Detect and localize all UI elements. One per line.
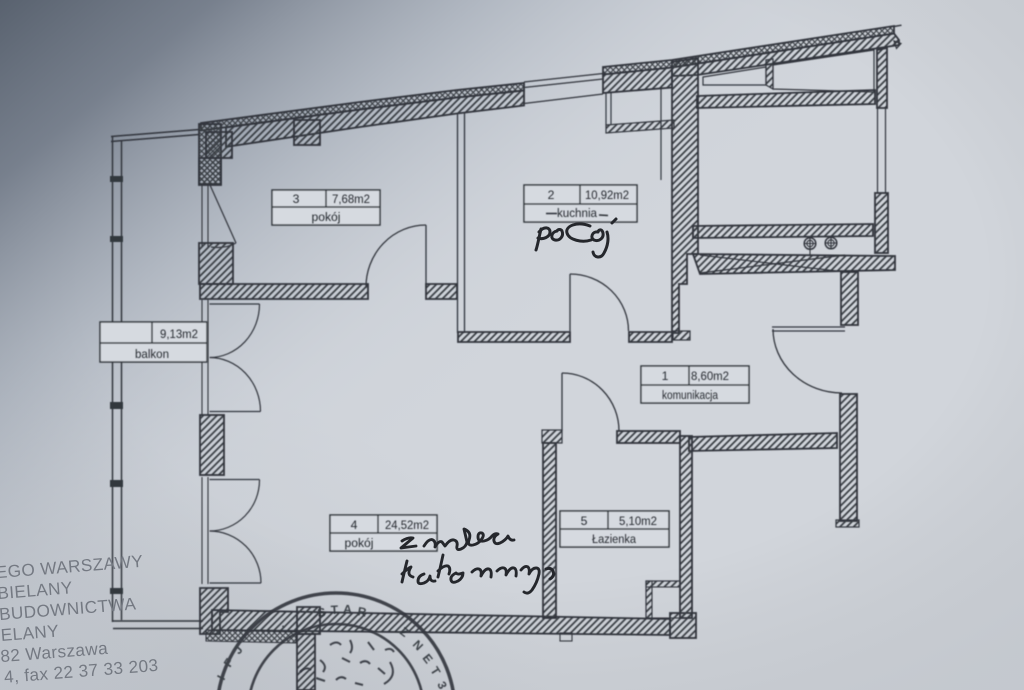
svg-text:3: 3	[293, 192, 300, 206]
svg-text:pokój: pokój	[312, 210, 341, 224]
svg-text:24,52m2: 24,52m2	[385, 518, 429, 532]
svg-text:8,60m2: 8,60m2	[691, 369, 729, 383]
svg-text:9,13m2: 9,13m2	[160, 327, 198, 341]
svg-text:1: 1	[662, 369, 669, 383]
svg-text:5: 5	[581, 514, 588, 528]
svg-text:balkon: balkon	[135, 347, 169, 361]
svg-text:komunikacja: komunikacja	[662, 388, 718, 402]
svg-text:pokój: pokój	[345, 536, 374, 550]
svg-text:7,68m2: 7,68m2	[332, 192, 370, 206]
svg-text:T: T	[330, 603, 339, 617]
svg-text:10,92m2: 10,92m2	[585, 188, 629, 202]
svg-text:Łazienka: Łazienka	[592, 532, 636, 546]
svg-text:kuchnia: kuchnia	[557, 206, 597, 220]
svg-text:5,10m2: 5,10m2	[619, 514, 657, 528]
svg-text:2: 2	[548, 188, 555, 202]
svg-text:4: 4	[351, 518, 358, 532]
svg-text:A: A	[343, 602, 353, 616]
